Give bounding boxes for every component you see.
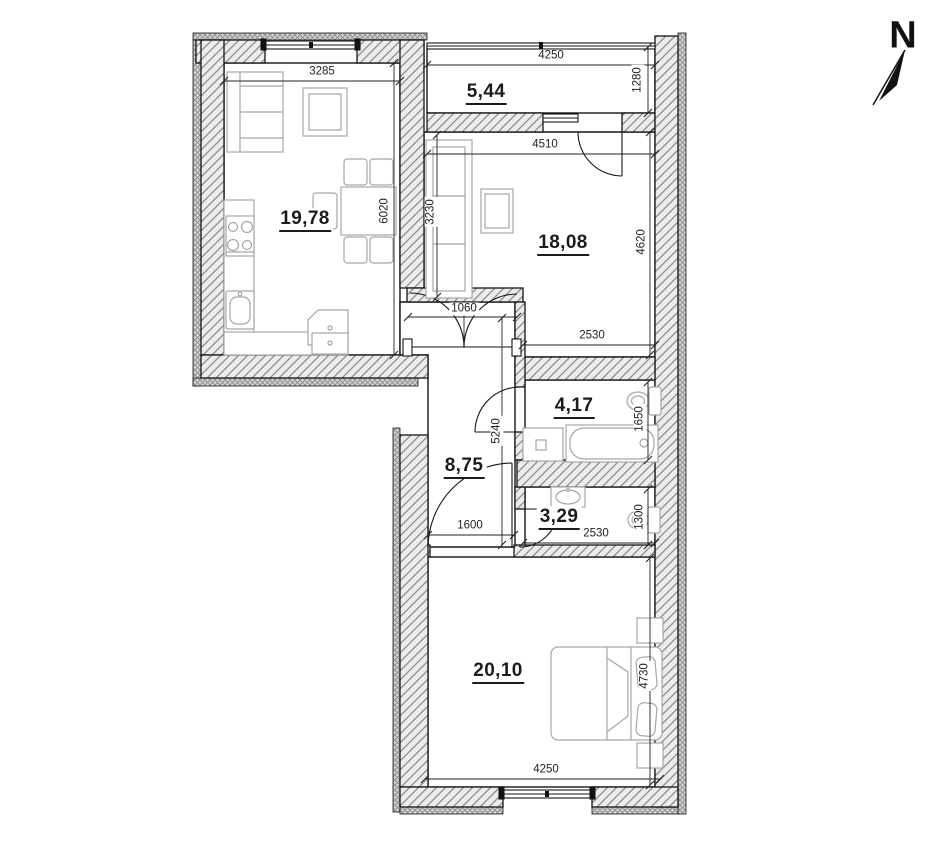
tv-stand-icon [481, 189, 513, 233]
dim-kitchen-height: 6020 [379, 196, 392, 226]
dim-sofa-span: 3230 [425, 197, 438, 227]
wall [201, 40, 224, 355]
room-label-balcony: 5,44 [464, 81, 509, 103]
wall [400, 787, 503, 807]
dim-bath-depth: 1650 [634, 404, 647, 434]
dim-wc-depth: 1300 [634, 502, 647, 532]
dim-bedroom-width: 4250 [531, 764, 561, 777]
dim-kitchen-top: 3285 [307, 66, 337, 79]
wall [514, 545, 655, 557]
wall [517, 357, 655, 380]
dim-passage-opening: 1060 [449, 303, 479, 316]
dim-room-bottom: 2530 [577, 330, 607, 343]
room-label-hallway: 8,75 [442, 455, 487, 477]
wall [622, 113, 655, 132]
dim-balcony-top: 4250 [536, 50, 566, 63]
north-arrow-icon [873, 50, 905, 105]
floor-plan: N 19,78 5,44 18,08 4,17 8,75 3,29 20,10 … [0, 0, 936, 853]
side-table-icon [303, 88, 347, 136]
wall [515, 487, 525, 509]
bedroom-window [499, 788, 595, 799]
wash-basin-icon [551, 487, 585, 507]
room-label-wc: 3,29 [537, 506, 582, 528]
dim-hall-span: 5240 [491, 416, 504, 446]
room-label-bathroom: 4,17 [552, 395, 597, 417]
dim-bedroom-door: 1600 [455, 520, 485, 533]
stove-icon [226, 216, 254, 256]
kitchen-sink-icon [226, 291, 254, 329]
wall [201, 355, 428, 378]
north-label: N [889, 15, 916, 58]
washing-machine-icon [523, 428, 563, 461]
sofa-icon [227, 72, 283, 152]
room-label-living-room: 18,08 [535, 232, 591, 254]
wall [517, 460, 655, 487]
kitchen-window [261, 39, 360, 50]
wall [592, 787, 678, 807]
room-label-kitchen-living: 19,78 [277, 208, 333, 230]
wall [427, 113, 543, 132]
dim-wc-width: 2530 [581, 528, 611, 541]
floor-plan-drawing [0, 0, 936, 853]
balcony-window [543, 114, 578, 122]
room-label-bedroom: 20,10 [470, 660, 526, 682]
wall [400, 435, 428, 787]
dim-balcony-depth: 1280 [632, 65, 645, 95]
dim-room-top: 4510 [530, 139, 560, 152]
dim-bedroom-depth: 4730 [639, 661, 652, 691]
dim-room-height: 4620 [636, 227, 649, 257]
